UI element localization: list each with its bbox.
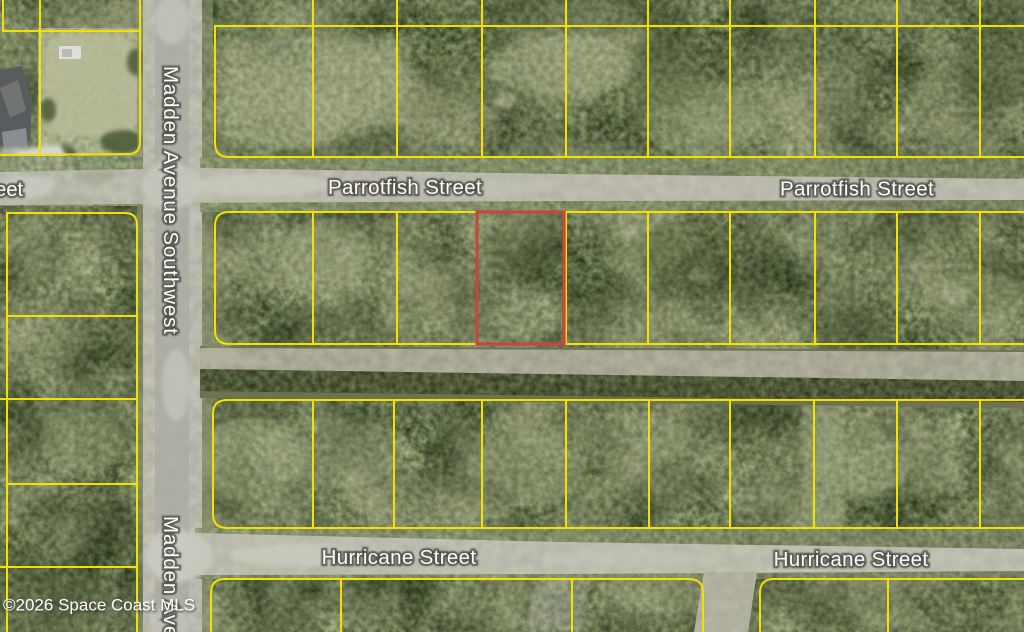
svg-text:Madden Avenue S: Madden Avenue S	[159, 516, 182, 632]
svg-text:Hurricane Street: Hurricane Street	[322, 546, 477, 569]
svg-text:©2026 Space Coast MLS: ©2026 Space Coast MLS	[3, 596, 195, 615]
svg-text:eet: eet	[0, 178, 23, 201]
svg-text:Parrotfish Street: Parrotfish Street	[780, 178, 934, 201]
svg-text:Hurricane Street: Hurricane Street	[774, 548, 929, 571]
svg-text:Madden Avenue Southwest: Madden Avenue Southwest	[159, 66, 182, 335]
svg-text:Parrotfish Street: Parrotfish Street	[328, 176, 482, 199]
